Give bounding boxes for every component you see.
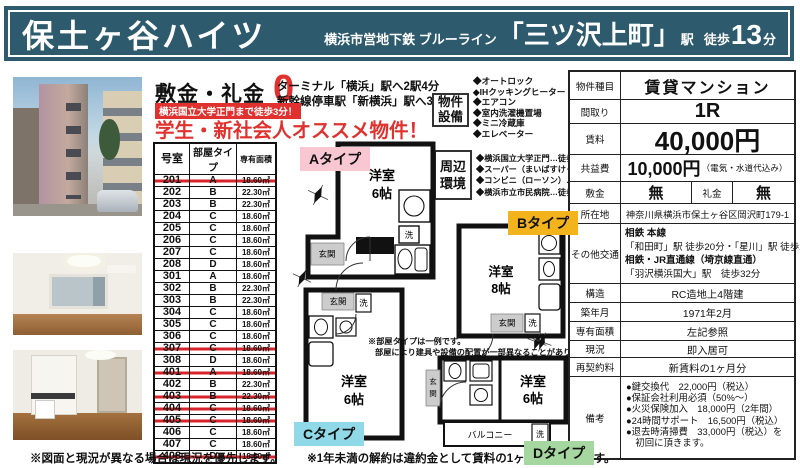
photo-floor [13,413,142,440]
remark-item: ●鍵交換代 22,000円（税込） [626,381,792,392]
access-line: 相鉄・JR直通線（埼京線直通） [625,254,800,268]
room-area: 18.60㎡ [237,331,277,343]
room-type: C [190,211,237,223]
room-number: 208 [154,259,190,271]
room-area: 18.60㎡ [237,271,277,283]
room-area: 22.30㎡ [237,379,277,391]
spec-value-structure: RC造地上4階建 [621,284,794,302]
room-number: 304 [154,307,190,319]
room-type: C [190,403,237,415]
spec-value-address: 神奈川県横浜市保土ヶ谷区岡沢町179-1 [621,204,794,223]
table-row: 204C18.60㎡ [154,211,276,223]
facility-item: ◆IHクッキングヒーター [473,87,565,98]
table-row: 202B22.30㎡ [154,187,276,199]
room-number: 205 [154,223,190,235]
facility-item: ◆オートロック [473,76,565,87]
room-type: C [190,247,237,259]
room-type: B [190,379,237,391]
room-type: C [190,307,237,319]
spec-value-fee: 10,000円 （電気・水道代込み） [621,155,794,181]
table-row: 207C18.60㎡ [154,247,276,259]
facilities-label-line1: 物件 [434,95,467,110]
spec-label-keymoney: 礼金 [692,182,733,203]
room-type: C [190,439,237,451]
room-type: C [190,427,237,439]
spec-row-property-type: 物件種目 賃貸マンション [570,72,794,100]
table-row: 305C18.60㎡ [154,319,276,331]
table-row: 301A18.60㎡ [154,271,276,283]
room-number: 202 [154,187,190,199]
photo-door [97,357,127,413]
spec-label: 再契約料 [570,358,621,376]
room-number: 203 [154,199,190,211]
room-label: 洋室 [341,374,367,389]
floorplan-c-label: Cタイプ [294,422,364,446]
table-row: 208D18.60㎡ [154,259,276,271]
access-line: 相鉄 本線 [625,227,800,241]
room-area: 18.60㎡ [237,343,277,355]
table-row: 304C18.60㎡ [154,307,276,319]
room-size-label: 6帖 [344,392,364,407]
remark-item: 初回に頂きます。 [626,437,792,448]
room-number: 204 [154,211,190,223]
room-area: 18.60㎡ [237,307,277,319]
room-type: B [190,391,237,403]
recommend-headline: 学生・新社会人オススメ物件！ [155,114,428,143]
fee-amount: 10,000円 [627,155,700,181]
entrance-label-vertical: 関 [429,389,437,398]
floorplan-b-label: Bタイプ [508,211,578,235]
table-row: 403B22.30㎡ [154,391,276,403]
room-area: 22.30㎡ [237,295,277,307]
room-area: 18.60㎡ [237,247,277,259]
access-line: 「羽沢横浜国大」駅 徒歩32分 [625,268,800,282]
facilities-list: ◆オートロック◆IHクッキングヒーター◆エアコン◆室内洗濯機置場◆ミニ冷蔵庫◆エ… [473,76,565,140]
facilities-label-line2: 設備 [434,110,467,125]
photo-building-left [13,108,39,208]
spec-label: 賃料 [570,124,621,154]
table-row: 308D18.60㎡ [154,355,276,367]
spec-value-keymoney: 無 [733,182,794,203]
entrance-label-vertical: 玄 [429,376,437,386]
spec-value-status: 即入居可 [621,341,794,357]
room-label: 洋室 [369,168,395,183]
room-type: A [190,175,237,187]
room-number: 206 [154,235,190,247]
room-number: 401 [154,367,190,379]
station-access: 横浜市営地下鉄 ブルーライン 「三ツ沢上町」 駅 徒歩 13 分 [324,15,776,52]
room-area: 18.60㎡ [237,175,277,187]
room-table: 号室 部屋タイプ 専有面積 201A18.60㎡202B22.30㎡203B22… [153,142,277,464]
photo-counter [31,393,75,398]
spec-label: 間取り [570,100,621,123]
facility-item: ◆ミニ冷蔵庫 [473,118,565,129]
entrance-label: 玄関 [318,249,335,259]
room-area: 22.30㎡ [237,187,277,199]
photo-ceiling-light [67,255,101,266]
col-room-number: 号室 [154,143,190,175]
room-type: C [190,331,237,343]
station-suffix: 駅 [681,29,694,48]
room-number: 402 [154,379,190,391]
remark-item: ●保証会社利用必須（50%～） [626,392,792,403]
remark-item: ●火災保険加入 18,000円（2年間） [626,403,792,414]
facilities-label: 物件 設備 [432,93,469,127]
room-number: 301 [154,271,190,283]
col-room-area: 専有面積 [237,143,277,175]
table-row: 405C18.60㎡ [154,415,276,427]
laundry-label: 洗 [528,318,537,328]
header-banner: 保土ヶ谷ハイツ 横浜市営地下鉄 ブルーライン 「三ツ沢上町」 駅 徒歩 13 分 [4,6,794,61]
interior-photo-room [13,253,142,335]
entrance-label: 玄関 [498,318,515,328]
room-area: 18.60㎡ [237,403,277,415]
spec-row-area: 専有面積 左記参照 [570,322,794,341]
room-number: 308 [154,355,190,367]
spec-value-remarks: ●鍵交換代 22,000円（税込）●保証会社利用必須（50%～）●火災保険加入 … [621,377,794,458]
photo-fridge [35,400,55,418]
table-row: 406C18.60㎡ [154,427,276,439]
facility-item: ◆室内洗濯機置場 [473,108,565,119]
room-number: 306 [154,331,190,343]
room-type: A [190,271,237,283]
photo-ceiling-light [85,350,116,360]
room-area: 22.30㎡ [237,391,277,403]
table-row: 203B22.30㎡ [154,199,276,211]
spec-row-remarks: 備考 ●鍵交換代 22,000円（税込）●保証会社利用必須（50%～）●火災保険… [570,377,794,458]
spec-label: 物件種目 [570,72,621,99]
room-area: 18.60㎡ [237,211,277,223]
floorplan-note: ※部屋タイプは一例です。 部屋により建具や設備の配置が一部異なることがあります。 [368,337,595,358]
surroundings-label-line2: 環境 [436,175,470,192]
spec-row-address: 所在地 神奈川県横浜市保土ヶ谷区岡沢町179-1 [570,204,794,224]
spec-row-deposit: 敷金 無 礼金 無 [570,182,794,204]
room-area: 22.30㎡ [237,199,277,211]
room-area: 18.60㎡ [237,427,277,439]
spec-row-status: 現況 即入居可 [570,341,794,358]
spec-label: 敷金 [570,182,621,203]
room-number: 207 [154,247,190,259]
room-type: A [190,367,237,379]
table-row: 402B22.30㎡ [154,379,276,391]
compass-icon [303,180,332,209]
station-name: 「三ツ沢上町」 [498,15,680,52]
laundry-label: 洗 [359,298,368,308]
photo-floor [13,314,142,335]
room-number: 407 [154,439,190,451]
room-number: 404 [154,403,190,415]
room-table-header: 号室 部屋タイプ 専有面積 [154,143,276,175]
table-row: 307C18.60㎡ [154,343,276,355]
spec-label: 共益費 [570,155,621,181]
surroundings-label-line1: 周辺 [436,158,470,175]
room-number: 201 [154,175,190,187]
floorplan-note-line1: ※部屋タイプは一例です。 [368,337,595,348]
room-number: 405 [154,415,190,427]
walk-label: 徒歩 [704,29,730,48]
room-area: 18.60㎡ [237,367,277,379]
spec-label: 構造 [570,284,621,302]
room-type: C [190,223,237,235]
room-type: C [190,235,237,247]
building-name: 保土ヶ谷ハイツ [22,11,266,57]
spec-row-structure: 構造 RC造地上4階建 [570,284,794,303]
line-name: 横浜市営地下鉄 ブルーライン [324,29,497,48]
room-area: 18.60㎡ [237,319,277,331]
facility-item: ◆エレベーター [473,129,565,140]
surroundings-label: 周辺 環境 [434,150,472,200]
col-room-type: 部屋タイプ [190,143,237,175]
spec-row-access: その他交通 相鉄 本線「和田町」駅 徒歩20分・「星川」駅 徒歩24分相鉄・JR… [570,224,794,284]
room-size-label: 6帖 [372,186,392,201]
room-area: 18.60㎡ [237,415,277,427]
room-type: C [190,415,237,427]
spec-label: 現況 [570,341,621,357]
walk-unit: 分 [763,29,776,48]
spec-value-renewal: 新賃料の1ヶ月分 [621,358,794,376]
table-row: 303B22.30㎡ [154,295,276,307]
room-type: C [190,319,237,331]
laundry-label: 洗 [405,230,414,240]
header-inner-frame: 保土ヶ谷ハイツ 横浜市営地下鉄 ブルーライン 「三ツ沢上町」 駅 徒歩 13 分 [8,10,790,57]
room-label: 洋室 [488,264,514,279]
table-row: 206C18.60㎡ [154,235,276,247]
room-number: 302 [154,283,190,295]
remark-item: ●退去時清掃費 33,000円（税込）を [626,426,792,437]
fee-note: （電気・水道代込み） [702,162,788,174]
spec-value-deposit: 無 [621,182,692,203]
floorplan-b: 玄関 洗 洋室 8帖 [455,222,567,340]
room-label: 洋室 [520,374,546,389]
table-row: 404C18.60㎡ [154,403,276,415]
room-number: 303 [154,295,190,307]
room-area: 18.60㎡ [237,223,277,235]
room-type: C [190,343,237,355]
photo-building-windows [66,88,81,199]
photo-aircon [107,265,135,272]
spec-row-fee: 共益費 10,000円 （電気・水道代込み） [570,155,794,182]
spec-value-area: 左記参照 [621,322,794,340]
facility-item: ◆エアコン [473,97,565,108]
table-row: 401A18.60㎡ [154,367,276,379]
room-number: 406 [154,427,190,439]
room-type: B [190,199,237,211]
room-area: 18.60㎡ [237,439,277,451]
spec-row-rent: 賃料 40,000円 [570,124,794,155]
spec-label: 築年月 [570,303,621,321]
room-table-body: 201A18.60㎡202B22.30㎡203B22.30㎡204C18.60㎡… [154,175,276,464]
door-arc [336,263,363,290]
photo-car [97,190,138,212]
photo-window [49,274,108,308]
spec-value-property-type: 賃貸マンション [621,72,794,99]
room-area: 22.30㎡ [237,283,277,295]
room-number: 307 [154,343,190,355]
room-type: B [190,295,237,307]
spec-label: 専有面積 [570,322,621,340]
table-row: 302B22.30㎡ [154,283,276,295]
room-area: 18.60㎡ [237,355,277,367]
footer-note1: ※図面と現況が異なる場合は現況を優先します。 [30,453,282,465]
spec-row-renewal: 再契約料 新賃料の1ヶ月分 [570,358,794,377]
room-type: D [190,259,237,271]
access-line: 「和田町」駅 徒歩20分・「星川」駅 徒歩24分 [625,241,800,255]
room-type: D [190,355,237,367]
spec-row-built: 築年月 1971年2月 [570,303,794,322]
room-area: 18.60㎡ [237,259,277,271]
spec-value-rent: 40,000円 [621,124,794,154]
floorplan-a-label: Aタイプ [300,147,370,171]
room-type: B [190,283,237,295]
spec-value-access: 相鉄 本線「和田町」駅 徒歩20分・「星川」駅 徒歩24分相鉄・JR直通線（埼京… [621,224,800,283]
table-row: 205C18.60㎡ [154,223,276,235]
floorplan-note-line2: 部屋により建具や設備の配置が一部異なることがあります。 [375,348,595,359]
room-type: B [190,187,237,199]
table-row: 407C18.60㎡ [154,439,276,451]
table-row: 201A18.60㎡ [154,175,276,187]
spec-value-built: 1971年2月 [621,303,794,321]
room-size-label: 8帖 [491,281,511,296]
spec-table: 物件種目 賃貸マンション 間取り 1R 賃料 40,000円 共益費 10,00… [568,70,796,460]
remark-item: ●24時間サポート 16,500円（税込） [626,415,792,426]
table-row: 306C18.60㎡ [154,331,276,343]
interior-photo-kitchen [13,350,142,440]
entrance-label: 玄関 [329,297,346,307]
exterior-photo [13,77,142,216]
floorplan-d-label: Dタイプ [524,441,594,465]
room-number: 403 [154,391,190,403]
room-area: 18.60㎡ [237,235,277,247]
laundry-label: 洗 [536,429,544,439]
room-size-label: 6帖 [523,391,543,406]
walk-minutes: 13 [731,19,762,51]
compass-icon [289,265,316,292]
balcony-label: バルコニー [468,430,513,440]
room-number: 305 [154,319,190,331]
